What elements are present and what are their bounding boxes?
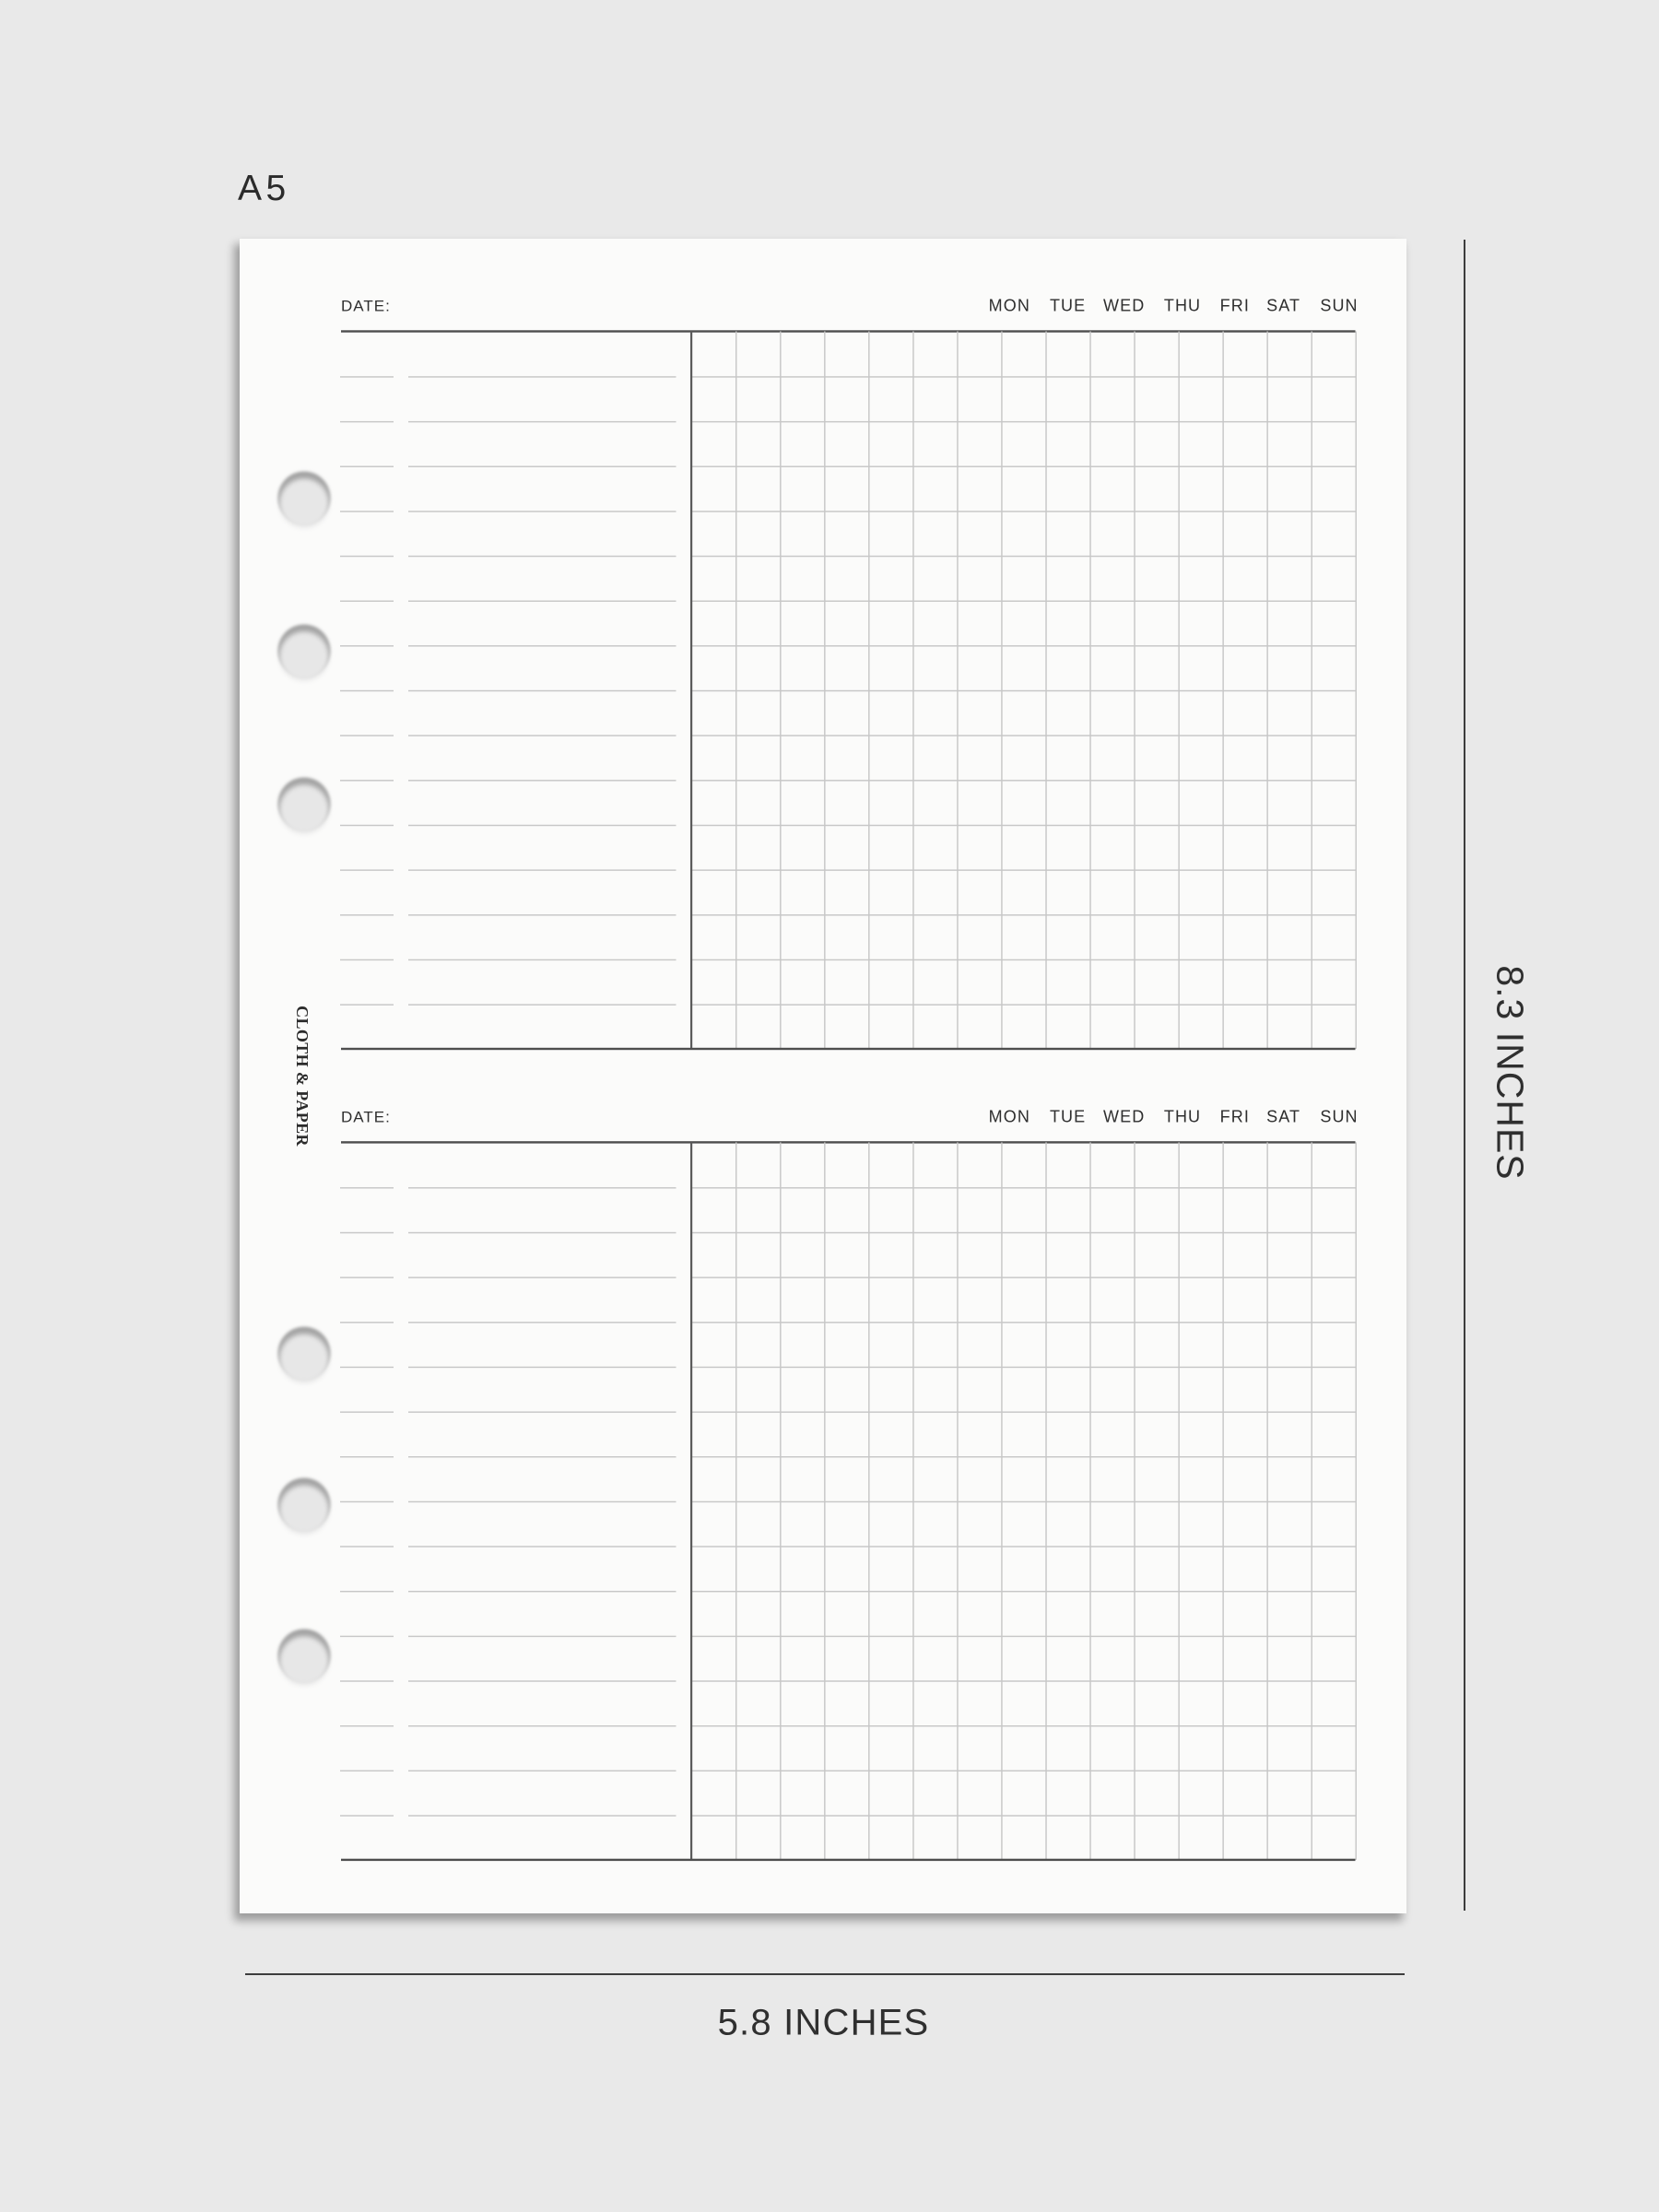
svg-text:CLOTH & PAPER: CLOTH & PAPER xyxy=(293,1006,312,1147)
svg-text:TUE: TUE xyxy=(1050,297,1086,315)
svg-text:THU: THU xyxy=(1164,1107,1201,1125)
svg-text:SAT: SAT xyxy=(1266,297,1300,315)
svg-text:FRI: FRI xyxy=(1220,1107,1250,1125)
svg-text:TUE: TUE xyxy=(1050,1107,1086,1125)
svg-text:DATE:: DATE: xyxy=(341,298,391,315)
svg-text:SUN: SUN xyxy=(1320,1107,1358,1125)
svg-text:WED: WED xyxy=(1103,297,1145,315)
svg-text:WED: WED xyxy=(1103,1107,1145,1125)
svg-text:DATE:: DATE: xyxy=(341,1108,391,1125)
svg-text:SUN: SUN xyxy=(1320,297,1358,315)
svg-text:MON: MON xyxy=(989,1107,1030,1125)
svg-text:THU: THU xyxy=(1164,297,1201,315)
svg-text:FRI: FRI xyxy=(1220,297,1250,315)
svg-text:SAT: SAT xyxy=(1266,1107,1300,1125)
svg-text:MON: MON xyxy=(989,297,1030,315)
